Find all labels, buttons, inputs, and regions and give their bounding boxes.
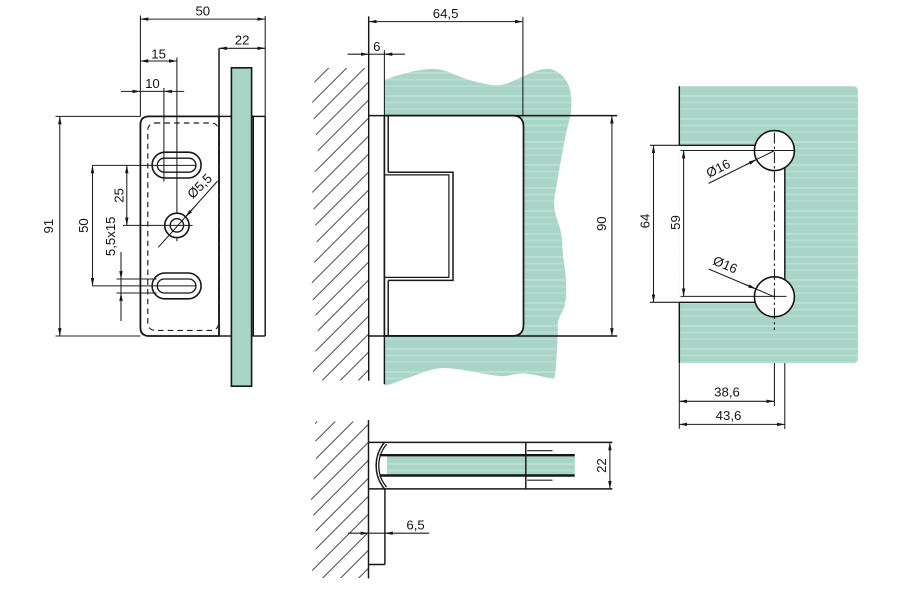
svg-text:64: 64 [638, 214, 653, 229]
svg-text:64,5: 64,5 [433, 6, 459, 21]
svg-text:22: 22 [235, 33, 250, 48]
svg-text:15: 15 [151, 47, 166, 62]
svg-text:22: 22 [594, 458, 609, 473]
svg-text:43,6: 43,6 [716, 408, 742, 423]
svg-text:91: 91 [41, 219, 56, 234]
svg-text:5,5x15: 5,5x15 [103, 216, 118, 256]
svg-text:50: 50 [76, 218, 91, 233]
svg-text:10: 10 [145, 76, 160, 91]
svg-text:59: 59 [668, 215, 683, 230]
svg-text:50: 50 [195, 4, 210, 19]
svg-text:90: 90 [594, 216, 609, 231]
svg-text:6,5: 6,5 [406, 517, 424, 532]
svg-text:38,6: 38,6 [714, 384, 740, 399]
svg-text:6: 6 [373, 39, 380, 54]
svg-text:25: 25 [111, 188, 126, 203]
